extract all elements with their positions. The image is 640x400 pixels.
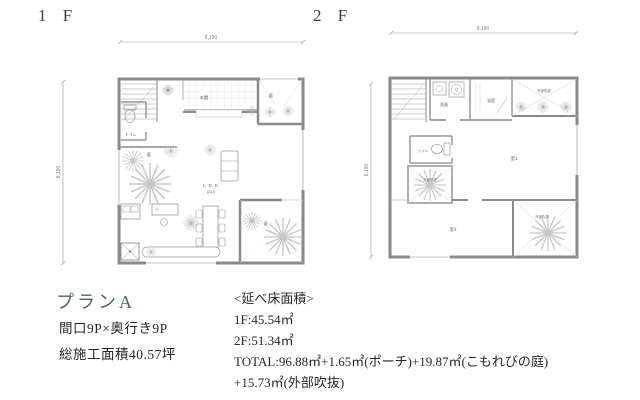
room1-label: 室1 [511,155,518,161]
floor-area-2f: 2F:51.34㎡ [234,330,548,351]
tree-icon [164,144,178,158]
dimension-left-1f-label: 8,190 [56,166,62,179]
tree-icon [162,84,174,96]
plan-1f: 8,190 8,190 [56,35,306,266]
hearth-icon [121,243,139,260]
plan-name: プランA [56,288,135,314]
frontage-spec: 間口9P×奥行き9P [59,317,168,337]
bathroom-label-2f: 浴室 [487,97,495,103]
plant-icon [283,106,294,117]
void-mid-label-2f: 外部吹抜 [423,177,437,182]
floor-area-total: TOTAL:96.88㎡+1.65㎡(ポーチ)+19.87㎡(こもれびの庭) [234,351,548,372]
tree-icon [530,215,566,251]
dimension-top-1f-label: 8,190 [205,35,218,41]
tree-icon [122,150,144,172]
plant-icon [560,101,572,113]
floor-area-heading: <延べ床面積> [234,288,548,309]
ldk-label: L D K [203,183,219,188]
entrance-label-1f: 玄関 [200,94,208,101]
ldk-size-label: (21J) [207,190,215,194]
dining-table-icon [196,206,225,252]
plant-icon [537,101,549,113]
construction-area-spec: 総施工面積40.57坪 [59,343,176,363]
floor-area-block: <延べ床面積> 1F:45.54㎡ 2F:51.34㎡ TOTAL:96.88㎡… [234,288,548,393]
plant-icon [247,106,257,116]
tree-icon [264,218,302,256]
floor-area-total-cont: +15.73㎡(外部吹抜) [234,372,548,393]
void-bottom-label-2f: 外部吹抜 [535,214,549,219]
plant-icon [183,215,199,231]
void-top-label-2f: 外部吹抜 [537,88,551,93]
washroom-label-2f: 洗面 [440,101,448,107]
toilet-label-1f: トイレ [125,132,137,137]
plant-icon [146,247,157,258]
tree-icon [129,163,171,205]
floor-area-1f: 1F:45.54㎡ [234,309,548,330]
floorplan-document: { "titles": { "floor1": "1 F", "floor2":… [0,0,640,400]
plan-2f: 8,190 8,190 [364,26,580,260]
room2-label: 室2 [450,226,457,232]
tree-icon [414,169,446,201]
plant-icon [516,102,527,113]
entrance-1f [183,79,258,117]
dimension-top-2f-label: 8,190 [477,26,490,32]
floorplan-drawing: 8,190 8,190 [0,0,640,282]
tree-icon [243,212,261,230]
plant-icon [265,107,276,118]
plant-icon [204,144,216,156]
dimension-left-2f-label: 8,190 [364,164,370,177]
toilet-label-2f: トイレ [418,149,429,153]
